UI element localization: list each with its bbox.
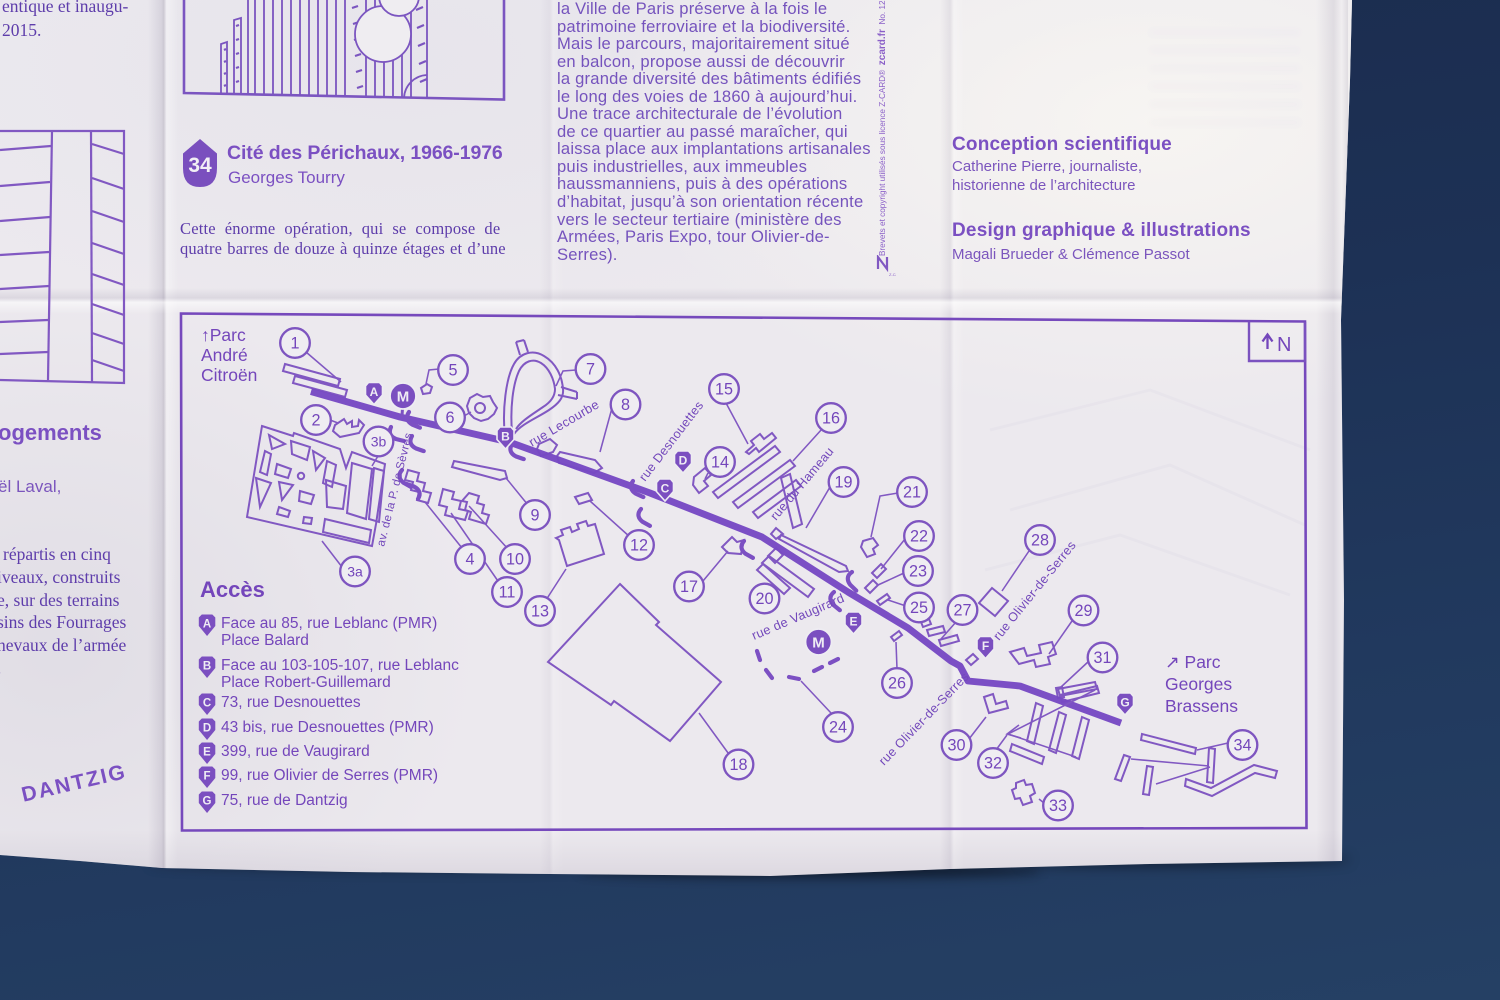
- svg-text:16: 16: [822, 410, 840, 428]
- svg-text:399, rue de Vaugirard: 399, rue de Vaugirard: [221, 743, 370, 760]
- svg-text:F: F: [982, 639, 989, 653]
- svg-text:C: C: [661, 482, 670, 496]
- svg-text:Citroën: Citroën: [201, 365, 257, 385]
- svg-text:D: D: [679, 454, 688, 468]
- svg-text:G: G: [203, 796, 212, 808]
- svg-text:↑Parc: ↑Parc: [201, 325, 246, 345]
- svg-text:E: E: [203, 747, 211, 759]
- svg-text:rue du Hameau: rue du Hameau: [768, 444, 837, 522]
- svg-text:43 bis, rue Desnouettes (PMR): 43 bis, rue Desnouettes (PMR): [221, 719, 434, 736]
- svg-text:15: 15: [715, 381, 733, 399]
- svg-text:C: C: [203, 698, 211, 710]
- svg-text:21: 21: [903, 484, 921, 502]
- svg-text:75, rue de Dantzig: 75, rue de Dantzig: [221, 792, 348, 809]
- svg-text:30: 30: [947, 737, 965, 755]
- svg-text:N: N: [1277, 334, 1291, 356]
- svg-text:5: 5: [448, 362, 457, 380]
- svg-text:Place Robert-Guillemard: Place Robert-Guillemard: [221, 674, 391, 691]
- svg-text:29: 29: [1074, 602, 1092, 620]
- svg-text:rue Lecourbe: rue Lecourbe: [526, 397, 602, 450]
- svg-text:B: B: [203, 661, 211, 673]
- svg-text:Brassens: Brassens: [1165, 696, 1238, 716]
- svg-text:34: 34: [1233, 737, 1251, 755]
- svg-text:25: 25: [910, 599, 928, 617]
- svg-text:33: 33: [1049, 797, 1067, 815]
- svg-text:34: 34: [188, 154, 212, 177]
- svg-text:73, rue Desnouettes: 73, rue Desnouettes: [221, 694, 361, 711]
- svg-text:1: 1: [290, 335, 299, 353]
- svg-text:M: M: [397, 389, 410, 406]
- svg-text:17: 17: [680, 578, 698, 596]
- svg-text:32: 32: [984, 755, 1002, 773]
- svg-text:23: 23: [909, 563, 927, 581]
- svg-text:27: 27: [953, 602, 971, 620]
- svg-text:Z-CARD: Z-CARD: [889, 272, 896, 277]
- svg-text:A: A: [370, 385, 379, 399]
- svg-text:19: 19: [834, 474, 852, 492]
- svg-text:A: A: [203, 619, 211, 631]
- svg-text:11: 11: [499, 584, 516, 602]
- svg-text:B: B: [501, 430, 510, 444]
- svg-text:Face au 103-105-107, rue Lebla: Face au 103-105-107, rue Leblanc: [221, 657, 459, 674]
- svg-text:12: 12: [630, 537, 648, 555]
- svg-text:7: 7: [586, 361, 595, 379]
- svg-text:3b: 3b: [371, 434, 387, 450]
- svg-text:14: 14: [711, 454, 729, 472]
- svg-text:18: 18: [729, 756, 747, 774]
- svg-text:G: G: [1120, 696, 1129, 710]
- svg-text:26: 26: [888, 675, 906, 693]
- svg-text:Accès: Accès: [200, 577, 265, 602]
- svg-text:F: F: [203, 771, 210, 783]
- svg-text:13: 13: [531, 603, 549, 621]
- svg-text:22: 22: [910, 528, 928, 546]
- svg-text:2: 2: [311, 412, 320, 430]
- svg-text:rue Desnouettes: rue Desnouettes: [636, 398, 706, 483]
- svg-text:Place Balard: Place Balard: [221, 632, 309, 649]
- svg-text:D: D: [203, 723, 211, 735]
- svg-text:6: 6: [445, 409, 454, 427]
- svg-text:24: 24: [829, 719, 847, 737]
- svg-text:28: 28: [1031, 532, 1049, 550]
- svg-text:8: 8: [621, 396, 630, 414]
- svg-text:10: 10: [506, 551, 524, 569]
- svg-text:20: 20: [755, 590, 773, 608]
- svg-text:Face au 85, rue Leblanc (PMR): Face au 85, rue Leblanc (PMR): [221, 615, 437, 632]
- svg-text:9: 9: [530, 507, 539, 525]
- svg-text:3a: 3a: [347, 564, 363, 580]
- svg-text:André: André: [201, 345, 248, 365]
- svg-text:E: E: [849, 615, 857, 629]
- svg-text:Georges: Georges: [1165, 674, 1232, 694]
- svg-text:M: M: [812, 635, 825, 652]
- svg-text:↗ Parc: ↗ Parc: [1165, 652, 1221, 672]
- svg-text:99, rue Olivier de Serres (PMR: 99, rue Olivier de Serres (PMR): [221, 767, 438, 784]
- svg-text:4: 4: [465, 551, 474, 569]
- svg-text:31: 31: [1093, 649, 1111, 667]
